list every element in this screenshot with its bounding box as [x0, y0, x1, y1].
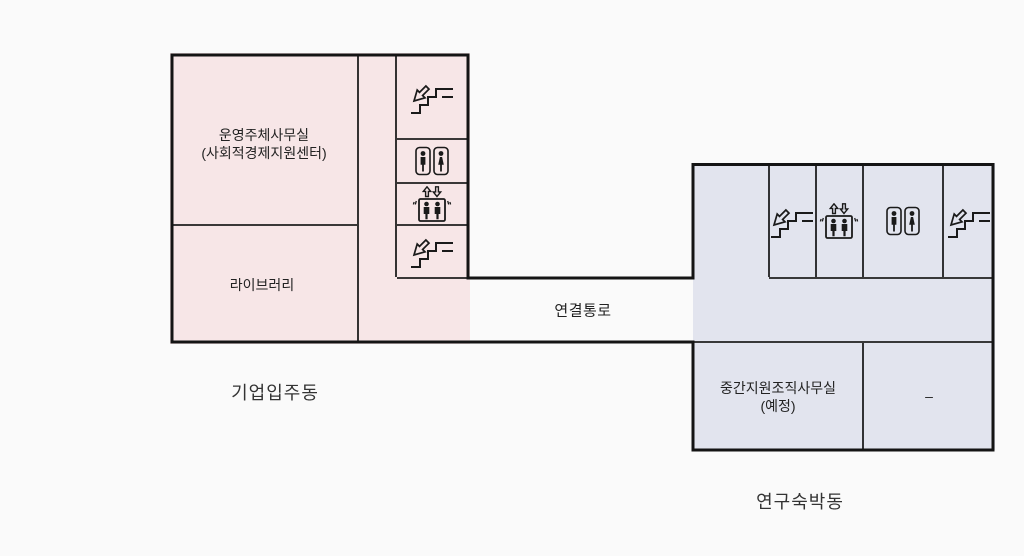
room-label-line: (사회적경제지원센터) [201, 144, 326, 162]
passage-label: 연결통로 [554, 300, 611, 321]
building-name-left: 기업입주동 [231, 379, 319, 405]
floor-plan-drawing [0, 0, 1024, 556]
building-name-right: 연구숙박동 [756, 488, 844, 514]
room-label-library: 라이브러리 [230, 276, 294, 294]
room-label-support-office: 중간지원조직사무실 (예정) [720, 379, 836, 415]
room-label-line: (예정) [720, 397, 836, 415]
floor-plan: 운영주체사무실 (사회적경제지원센터) 라이브러리 연결통로 중간지원조직사무실… [0, 0, 1024, 556]
room-label-operating-office: 운영주체사무실 (사회적경제지원센터) [201, 126, 326, 162]
room-label-line: 운영주체사무실 [201, 126, 326, 144]
room-label-line: 중간지원조직사무실 [720, 379, 836, 397]
room-label-unassigned: – [925, 387, 933, 405]
